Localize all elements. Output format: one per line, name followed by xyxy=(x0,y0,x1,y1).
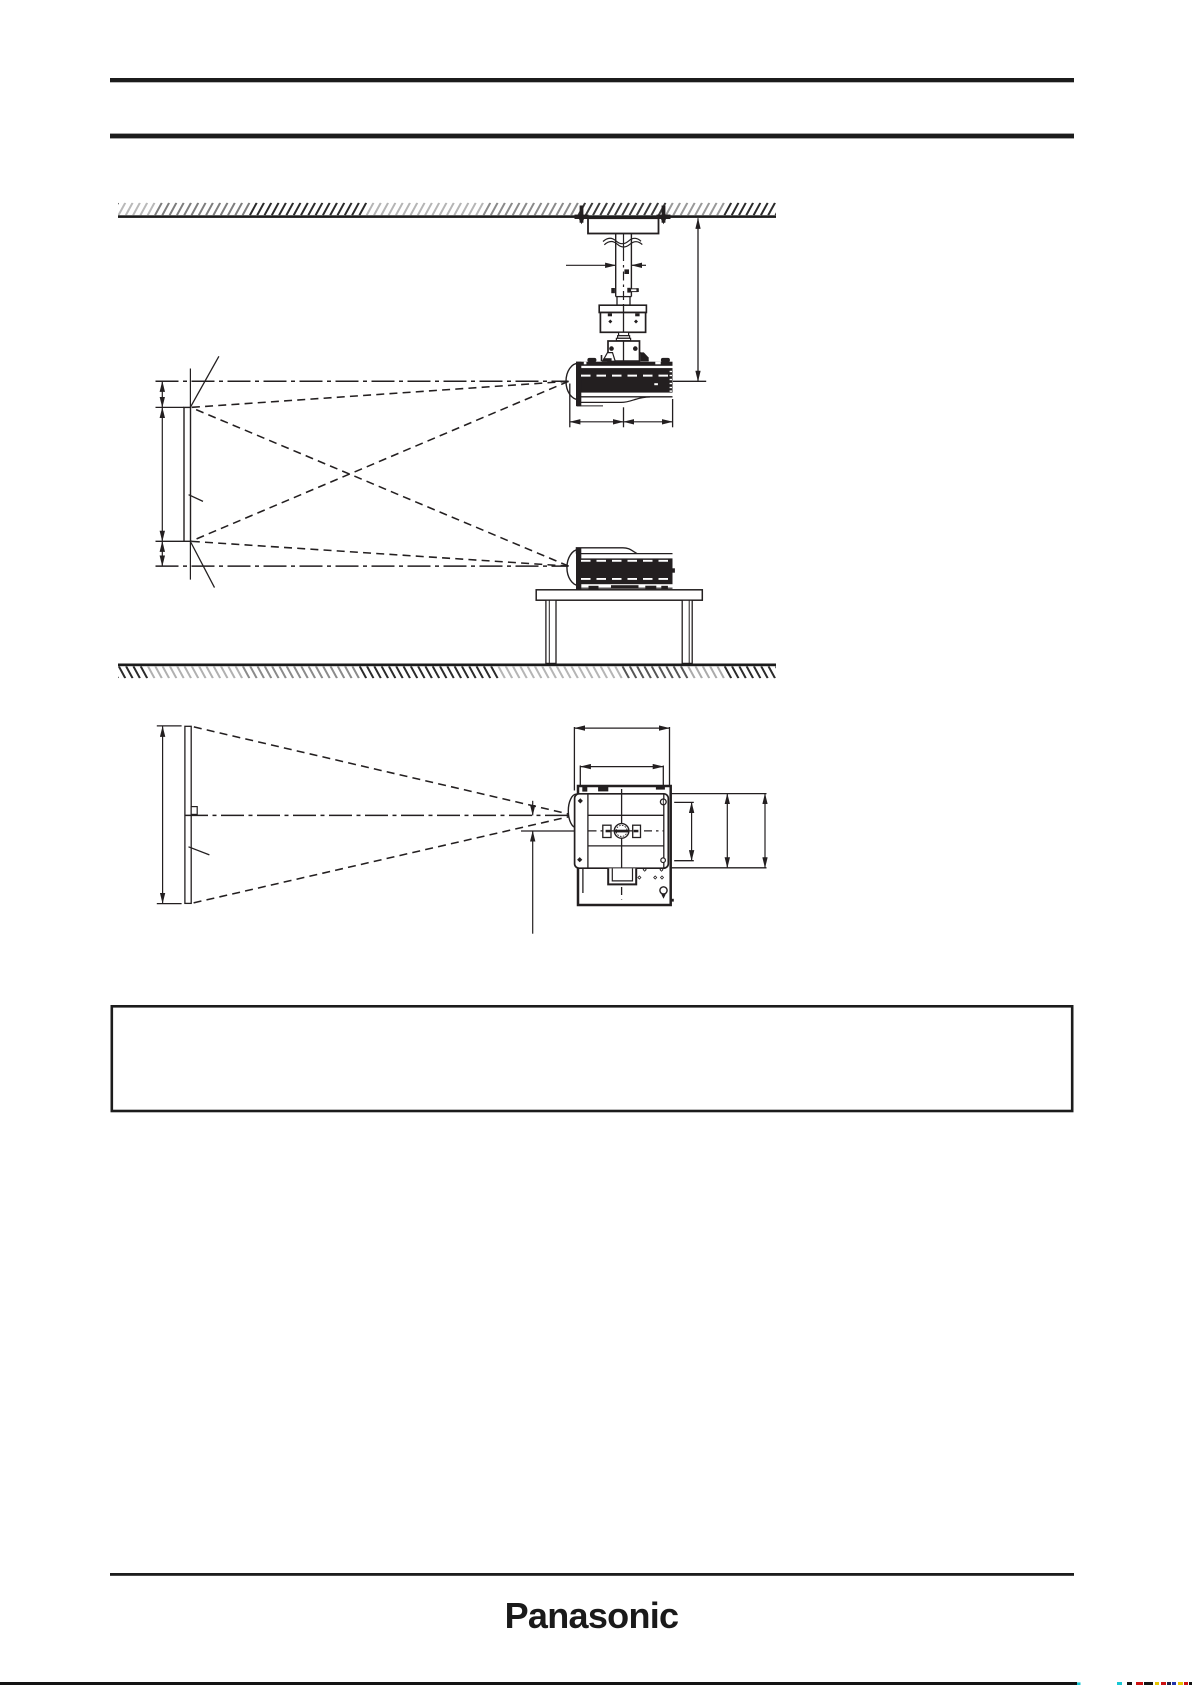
svg-text:Panasonic: Panasonic xyxy=(505,1595,679,1636)
